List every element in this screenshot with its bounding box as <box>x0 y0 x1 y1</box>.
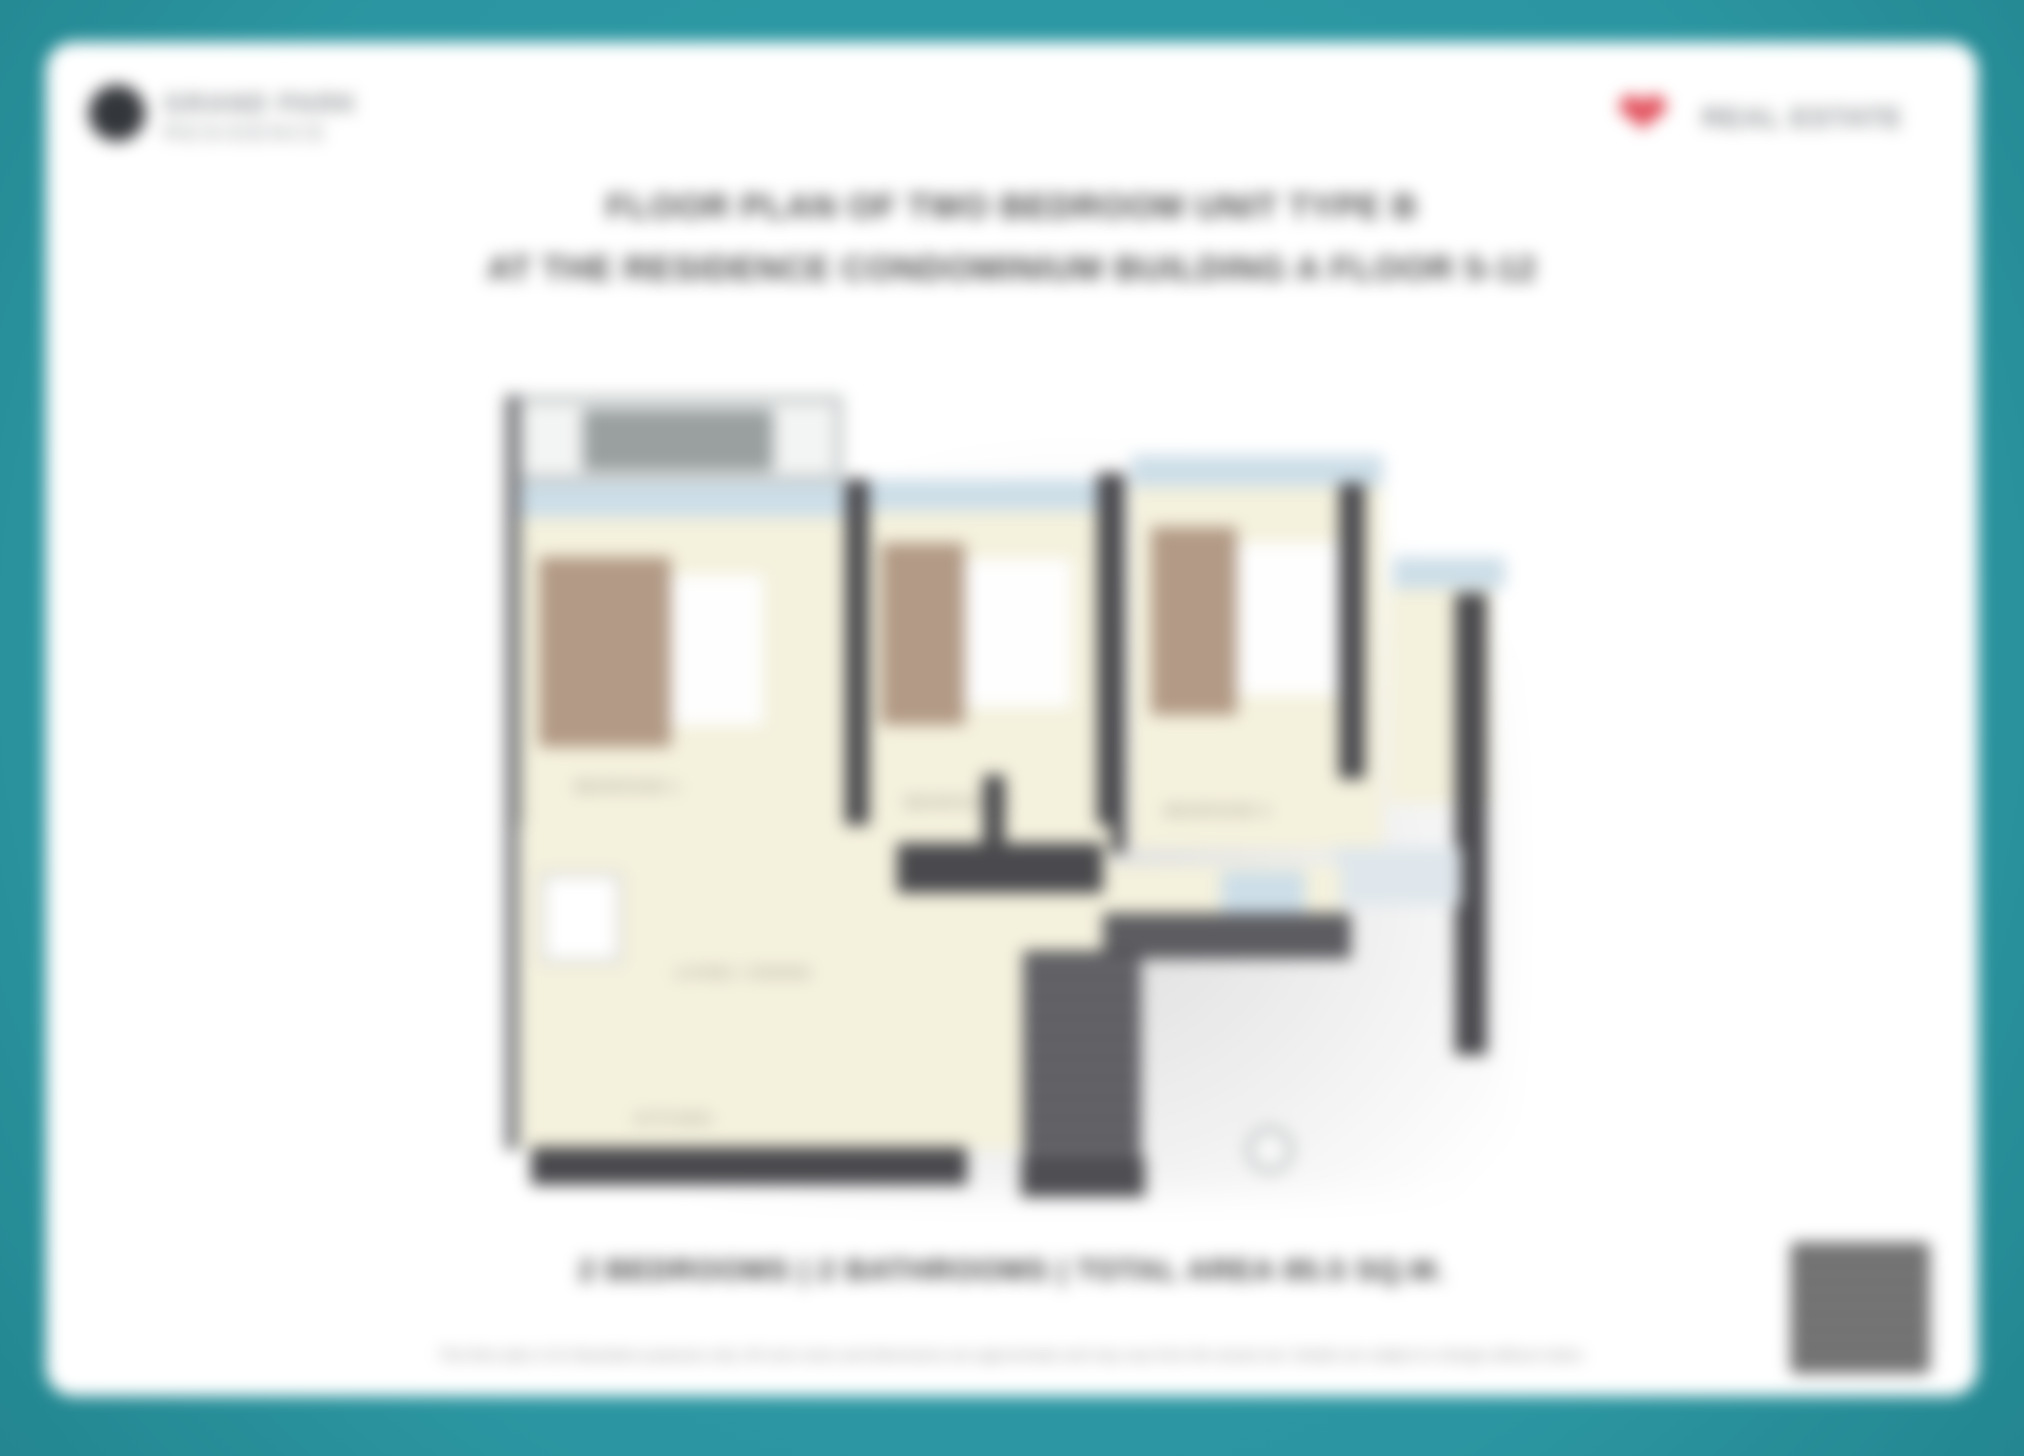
floor-plan: BEDROOM 1 BEDROOM 2 BEDROOM 3 LIVING / D… <box>505 395 1530 1195</box>
wall <box>897 843 1103 893</box>
wall <box>505 395 521 825</box>
partner-logo: ❤ REAL ESTATE <box>1616 82 1996 172</box>
wall <box>845 479 869 835</box>
bed <box>1151 527 1237 715</box>
wall <box>1339 483 1365 779</box>
logo-line1: GRAND PARK <box>164 88 358 119</box>
window-band <box>1393 557 1505 589</box>
wall <box>1021 1157 1145 1197</box>
balcony-furniture <box>583 409 773 471</box>
page-card: GRAND PARK RESIDENCE ❤ REAL ESTATE FLOOR… <box>46 42 1978 1396</box>
qr-code <box>1790 1242 1930 1374</box>
bed-duvet <box>671 575 763 725</box>
window-band <box>521 483 845 517</box>
wall <box>505 825 519 1150</box>
room-label: KITCHEN <box>635 1111 712 1129</box>
company-logo: GRAND PARK RESIDENCE <box>88 80 408 200</box>
window-band <box>869 479 1097 511</box>
disclaimer-text: This floor plan is for illustrative purp… <box>46 1347 1978 1364</box>
bed <box>881 543 965 725</box>
logo-line2: RESIDENCE <box>164 120 328 146</box>
compass-icon <box>1247 1127 1293 1173</box>
heart-icon: ❤ <box>1616 82 1670 146</box>
window-band <box>1221 871 1305 915</box>
building-emblem-icon <box>88 84 146 142</box>
unit-summary: 2 BEDROOMS | 2 BATHROOMS | TOTAL AREA 85… <box>46 1254 1978 1288</box>
wall <box>1455 593 1487 1055</box>
bed-duvet <box>965 559 1071 707</box>
bed <box>539 557 671 747</box>
room-label: BEDROOM 1 <box>575 779 680 797</box>
blurred-floorplan-flyer: { "colors": { "teal": "#2b96a1", "teal_l… <box>0 0 2024 1456</box>
bed-duvet <box>1237 543 1353 695</box>
kitchen-counter <box>531 1147 967 1185</box>
room-label: LIVING / DINING <box>675 965 812 983</box>
title-line2: AT THE RESIDENCE CONDOMINIUM BUILDING A … <box>46 250 1978 289</box>
wall <box>983 775 1005 845</box>
wall <box>1097 473 1125 853</box>
wing-balcony <box>1333 847 1461 905</box>
room-label: BEDROOM 3 <box>1165 803 1270 821</box>
refrigerator <box>541 873 621 963</box>
staircase <box>1023 951 1141 1165</box>
partner-logo-text: REAL ESTATE <box>1702 102 1903 134</box>
title-line1: FLOOR PLAN OF TWO BEDROOM UNIT TYPE B <box>46 188 1978 227</box>
